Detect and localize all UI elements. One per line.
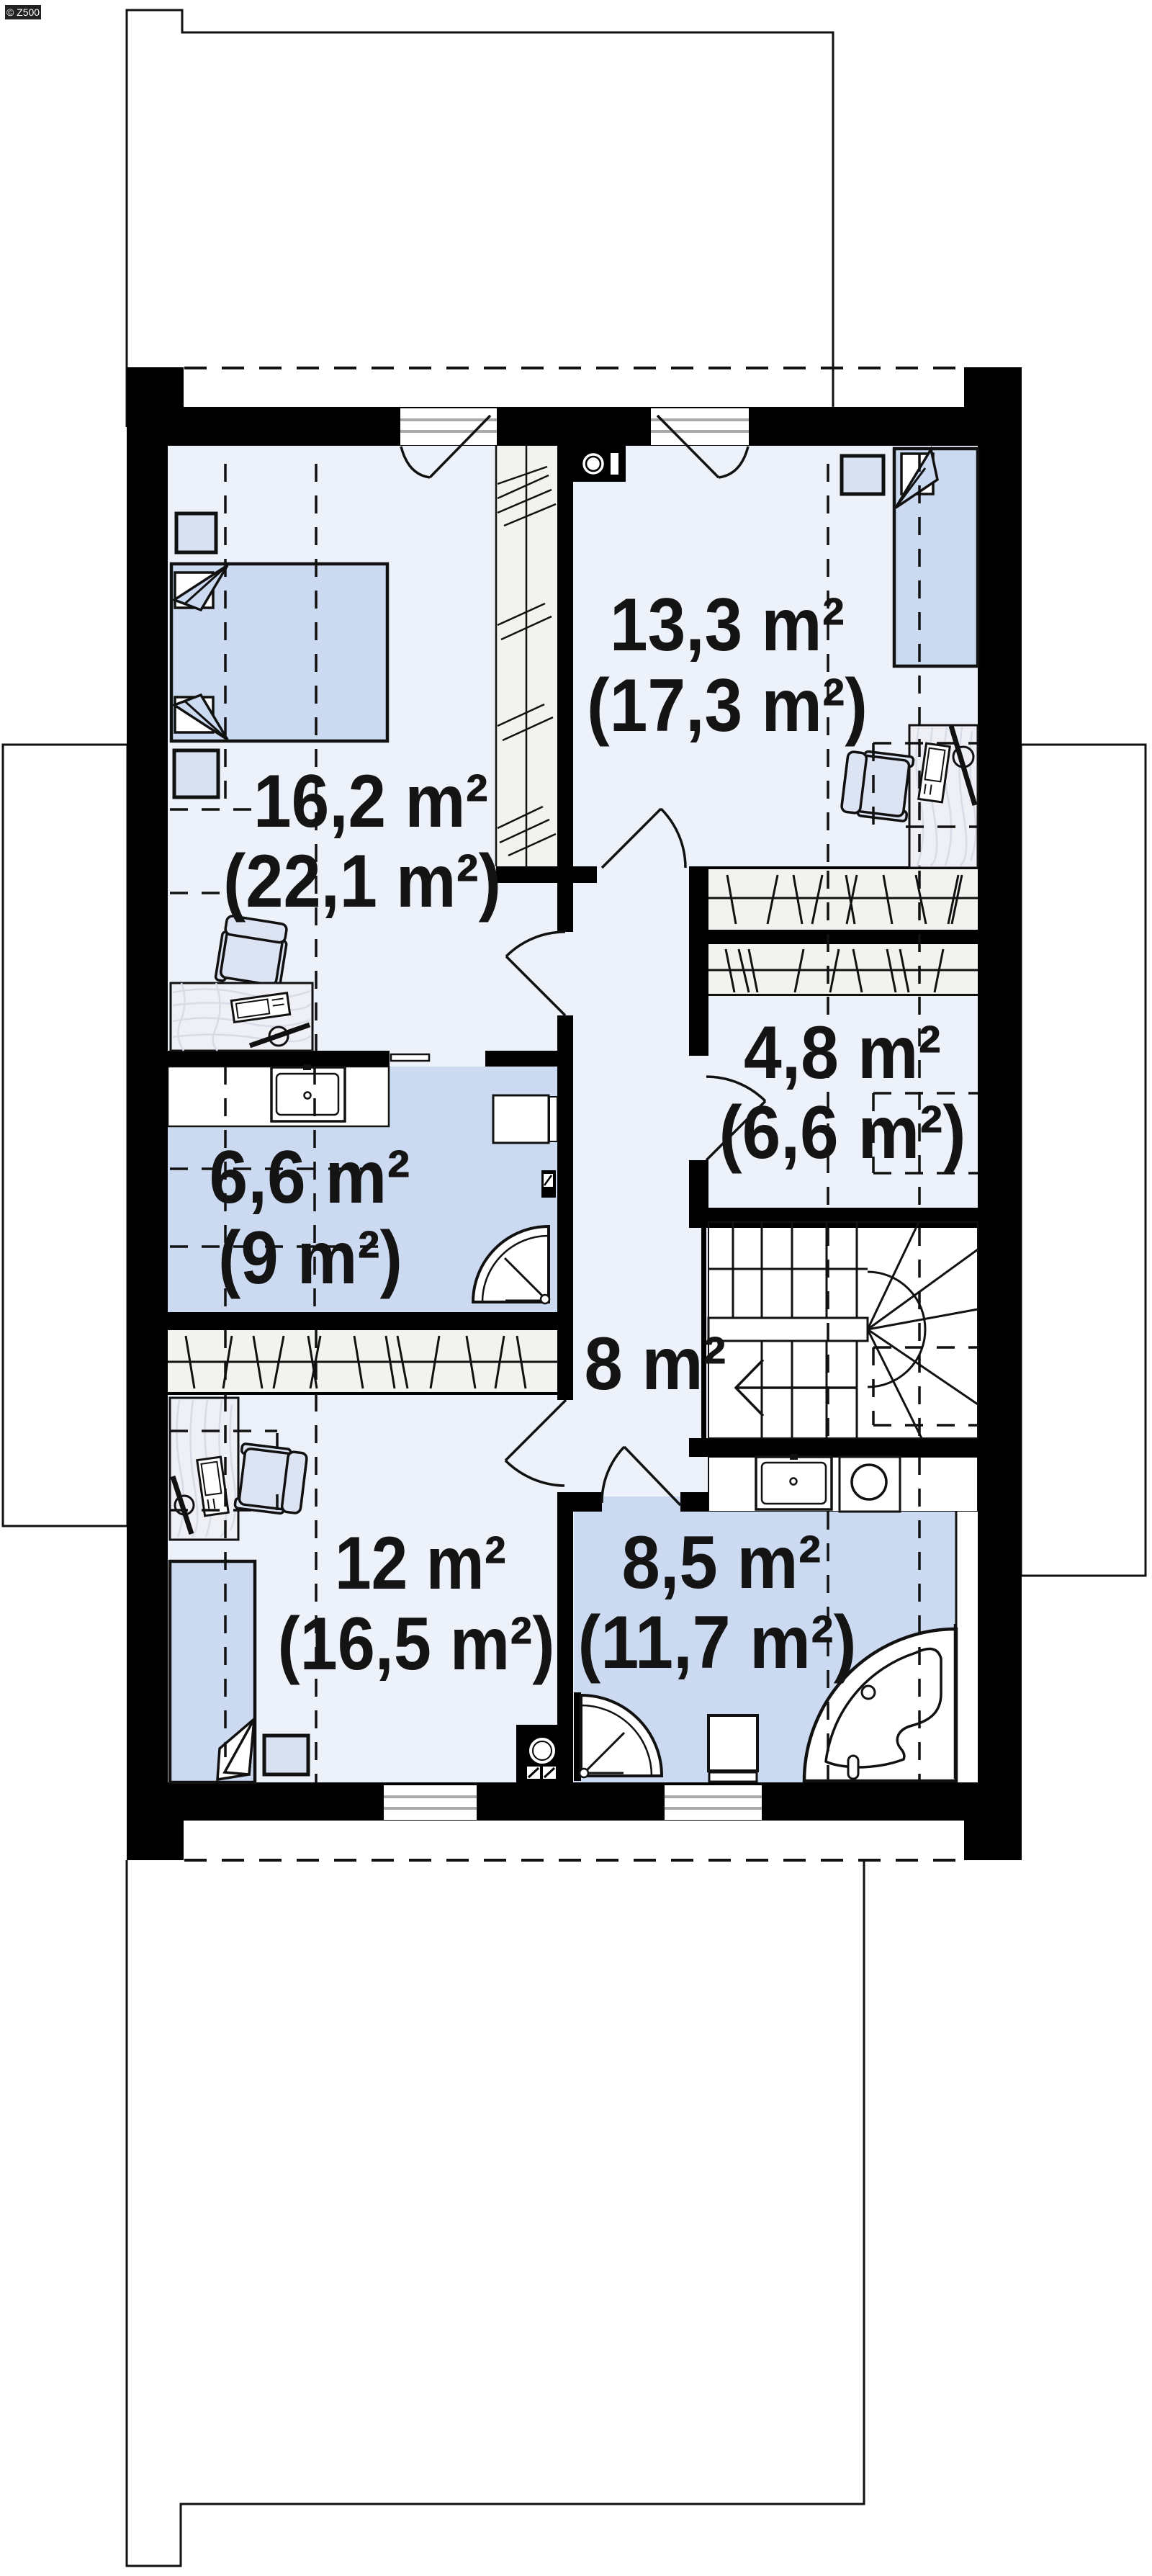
svg-text:(17,3 m²): (17,3 m²) xyxy=(587,664,868,748)
svg-text:12 m²: 12 m² xyxy=(335,1522,506,1605)
svg-text:16,2 m²: 16,2 m² xyxy=(253,760,488,843)
svg-text:8,5 m²: 8,5 m² xyxy=(622,1521,822,1605)
svg-text:6,6 m²: 6,6 m² xyxy=(210,1136,410,1219)
svg-text:13,3 m²: 13,3 m² xyxy=(610,583,845,667)
svg-text:(16,5 m²): (16,5 m²) xyxy=(278,1602,555,1686)
svg-text:4,8 m²: 4,8 m² xyxy=(744,1011,941,1095)
svg-text:(11,7 m²): (11,7 m²) xyxy=(578,1601,857,1684)
svg-text:(9 m²): (9 m²) xyxy=(218,1216,402,1300)
svg-text:(6,6 m²): (6,6 m²) xyxy=(719,1091,966,1175)
svg-text:(22,1 m²): (22,1 m²) xyxy=(223,840,501,923)
svg-text:8 m²: 8 m² xyxy=(585,1322,726,1406)
svg-text:© Z500: © Z500 xyxy=(6,6,40,18)
